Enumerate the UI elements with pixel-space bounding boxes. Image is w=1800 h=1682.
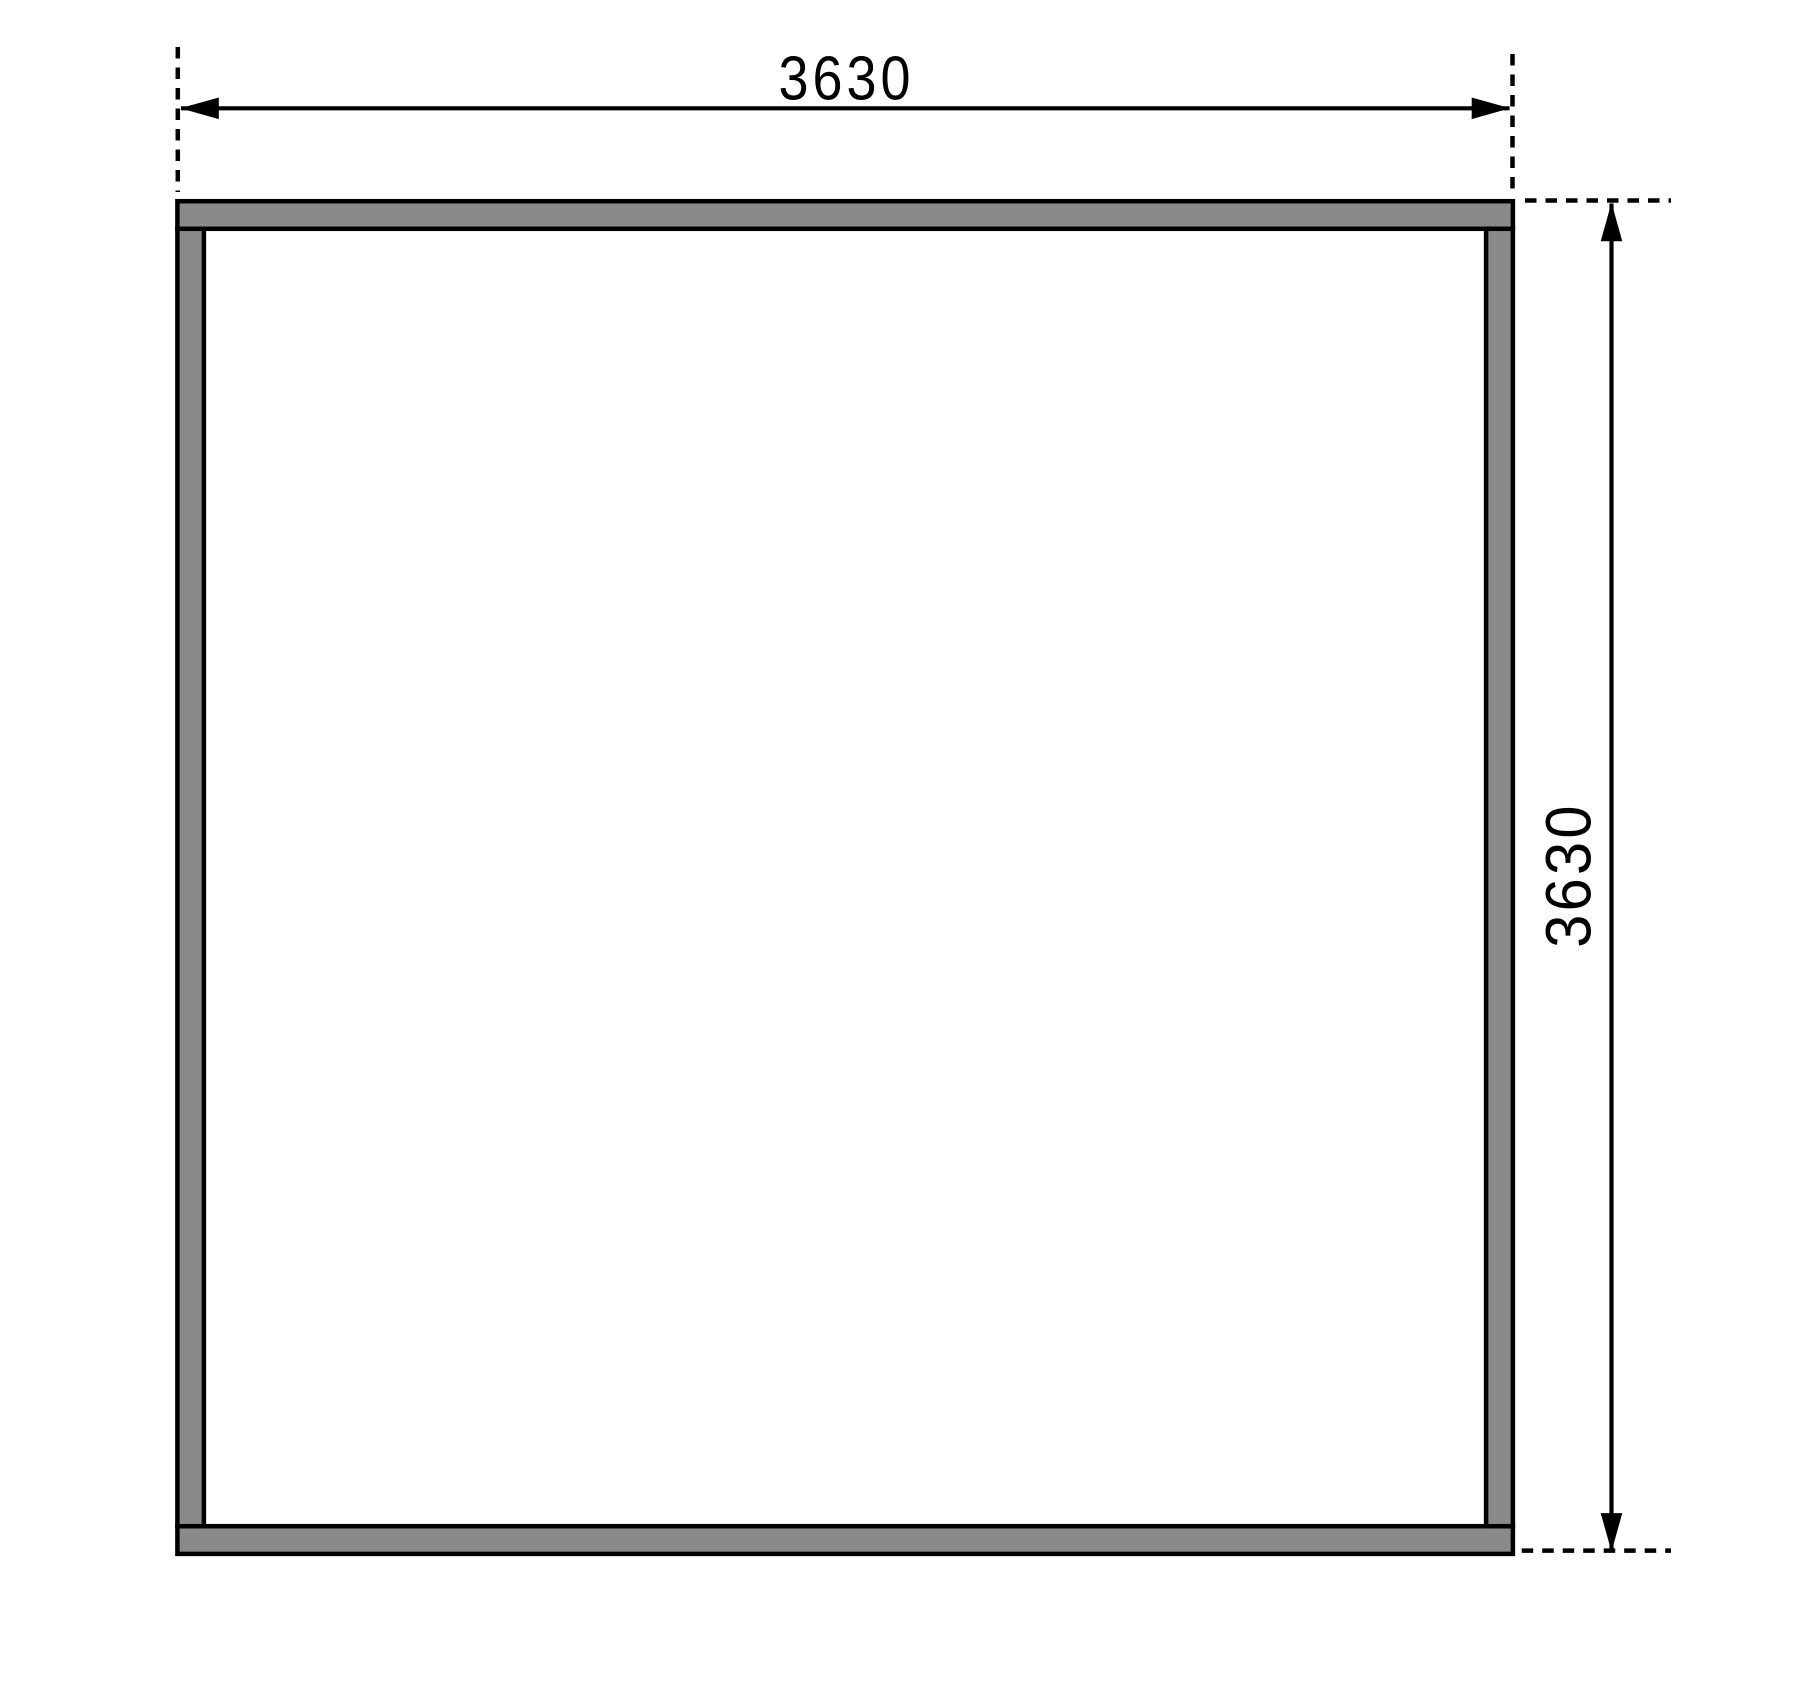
svg-text:3630: 3630 <box>1534 802 1605 947</box>
svg-text:3630: 3630 <box>779 44 915 113</box>
